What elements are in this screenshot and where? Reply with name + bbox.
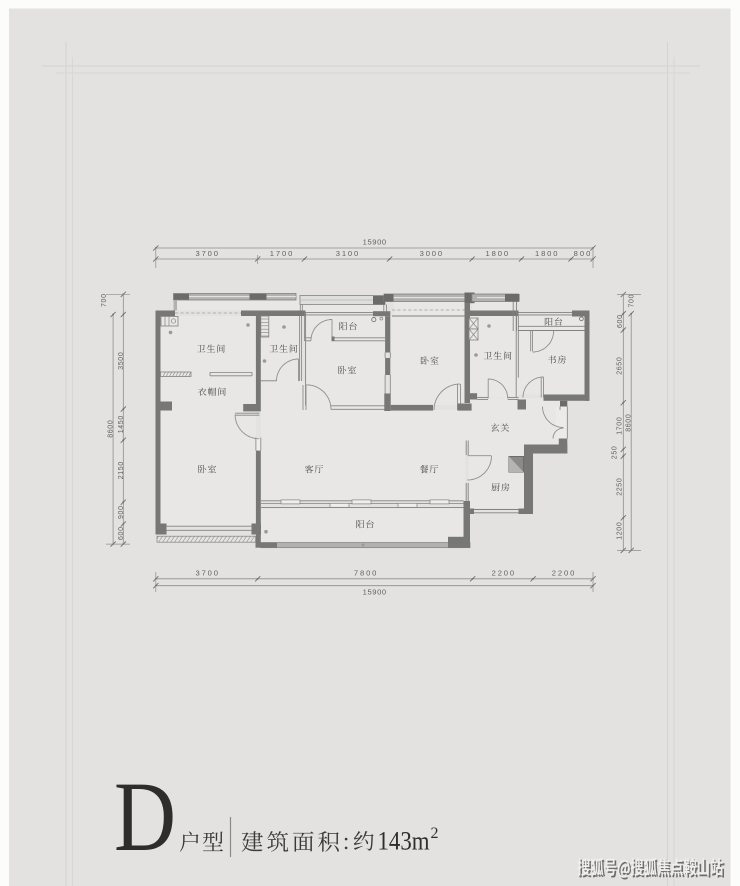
svg-text:143m: 143m [378,826,430,856]
svg-text:8600: 8600 [107,420,114,438]
svg-text:2200: 2200 [552,569,575,578]
svg-text:700: 700 [101,294,108,307]
svg-text:600: 600 [617,315,624,328]
svg-text:7800: 7800 [354,569,377,578]
svg-text:D: D [114,761,176,872]
svg-text:15900: 15900 [363,588,387,597]
svg-text:1450: 1450 [118,416,125,434]
svg-text:1700: 1700 [270,249,293,258]
svg-text:2250: 2250 [617,478,624,496]
svg-text:3000: 3000 [420,249,443,258]
svg-text:800: 800 [574,249,591,258]
svg-text:2: 2 [431,825,439,842]
svg-text:250: 250 [611,446,618,459]
svg-text:900: 900 [118,506,125,519]
svg-text:3700: 3700 [196,249,219,258]
svg-text:1800: 1800 [535,249,558,258]
svg-text:1700: 1700 [617,417,624,435]
svg-text:3100: 3100 [336,249,359,258]
svg-text:1200: 1200 [617,522,624,540]
svg-text:15900: 15900 [363,238,387,247]
svg-text:600: 600 [118,527,125,540]
svg-text:3500: 3500 [118,352,125,370]
svg-text:2200: 2200 [492,569,514,578]
svg-text:3700: 3700 [196,569,219,578]
svg-text:700: 700 [628,294,635,307]
svg-text:2150: 2150 [118,462,125,480]
svg-text:8600: 8600 [626,414,633,432]
svg-text:1800: 1800 [486,249,509,258]
svg-text:2650: 2650 [617,357,624,375]
